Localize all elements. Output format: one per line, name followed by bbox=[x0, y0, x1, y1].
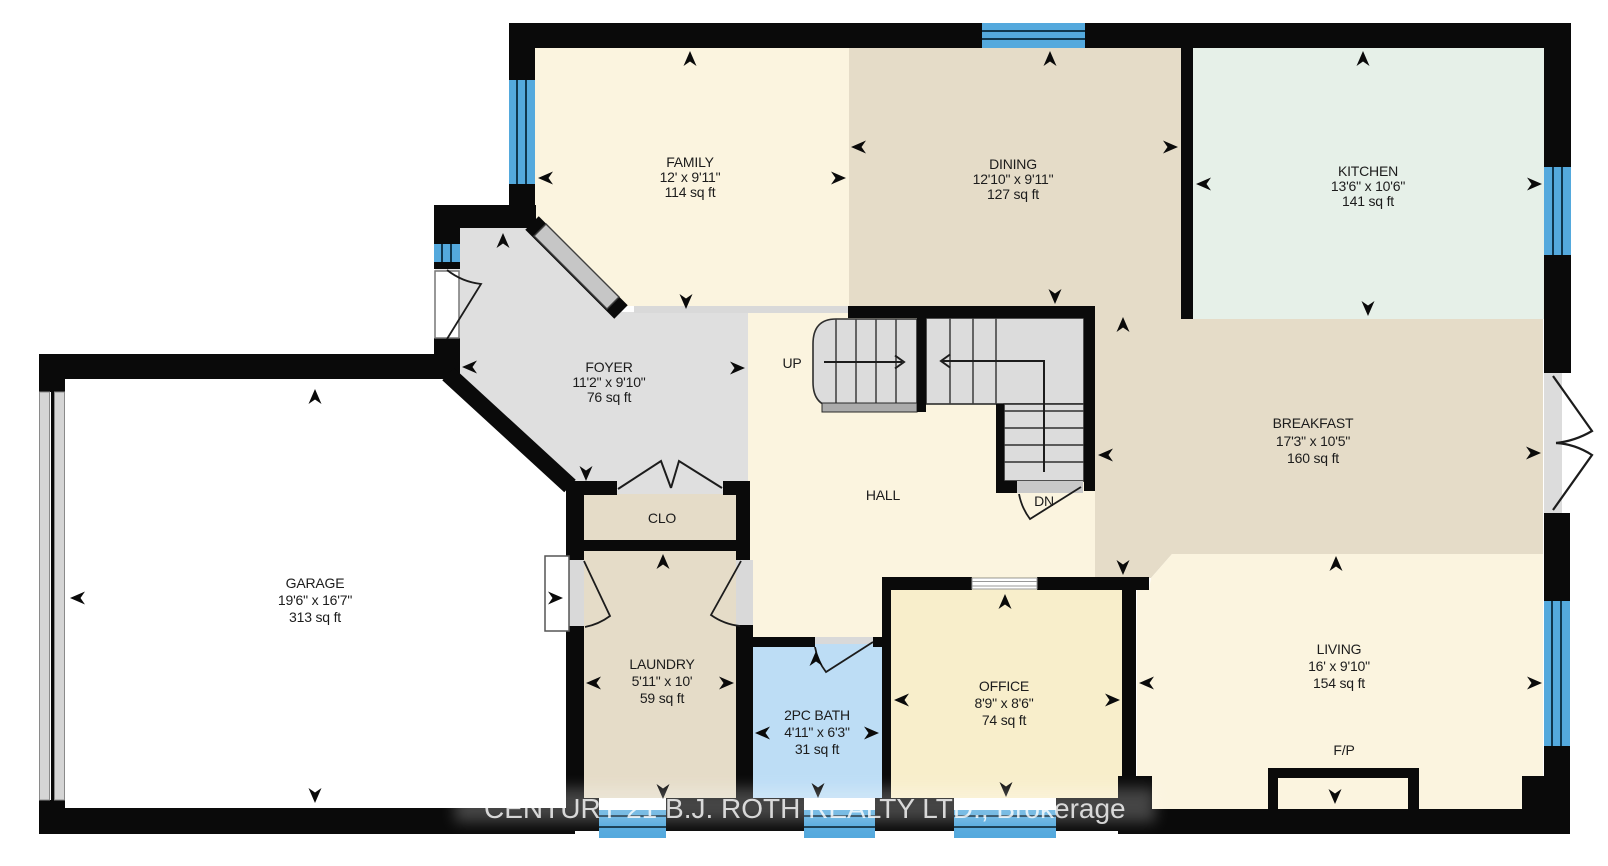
svg-text:DN: DN bbox=[1034, 493, 1054, 509]
svg-text:5'11" x 10': 5'11" x 10' bbox=[632, 673, 693, 689]
svg-text:12'10" x 9'11": 12'10" x 9'11" bbox=[973, 171, 1054, 187]
svg-text:FAMILY: FAMILY bbox=[666, 154, 714, 170]
svg-text:19'6" x 16'7": 19'6" x 16'7" bbox=[278, 592, 352, 608]
svg-text:4'11" x 6'3": 4'11" x 6'3" bbox=[784, 724, 850, 740]
svg-text:OFFICE: OFFICE bbox=[979, 678, 1029, 694]
svg-text:LAUNDRY: LAUNDRY bbox=[629, 656, 695, 672]
svg-text:LIVING: LIVING bbox=[1317, 641, 1362, 657]
svg-text:FOYER: FOYER bbox=[585, 359, 632, 375]
svg-text:74 sq ft: 74 sq ft bbox=[982, 712, 1027, 728]
svg-text:CENTURY 21 B.J. ROTH REALTY LT: CENTURY 21 B.J. ROTH REALTY LTD., Broker… bbox=[484, 793, 1126, 824]
svg-text:16' x 9'10": 16' x 9'10" bbox=[1308, 658, 1370, 674]
svg-text:F/P: F/P bbox=[1333, 742, 1354, 758]
svg-text:12' x 9'11": 12' x 9'11" bbox=[660, 169, 721, 185]
svg-text:114 sq ft: 114 sq ft bbox=[665, 184, 716, 200]
svg-text:11'2" x 9'10": 11'2" x 9'10" bbox=[572, 374, 645, 390]
svg-text:2PC BATH: 2PC BATH bbox=[784, 707, 850, 723]
svg-text:154 sq ft: 154 sq ft bbox=[1313, 675, 1365, 691]
svg-text:UP: UP bbox=[782, 355, 801, 371]
svg-text:59 sq ft: 59 sq ft bbox=[640, 690, 685, 706]
svg-text:31 sq ft: 31 sq ft bbox=[795, 741, 840, 757]
svg-text:76 sq ft: 76 sq ft bbox=[587, 389, 632, 405]
svg-text:160 sq ft: 160 sq ft bbox=[1287, 450, 1339, 466]
svg-text:KITCHEN: KITCHEN bbox=[1338, 163, 1398, 179]
svg-text:13'6" x 10'6": 13'6" x 10'6" bbox=[1331, 178, 1405, 194]
svg-text:DINING: DINING bbox=[989, 156, 1037, 172]
svg-text:GARAGE: GARAGE bbox=[286, 575, 345, 591]
svg-text:BREAKFAST: BREAKFAST bbox=[1273, 415, 1354, 431]
svg-text:CLO: CLO bbox=[648, 510, 676, 526]
svg-text:313 sq ft: 313 sq ft bbox=[289, 609, 341, 625]
svg-text:127 sq ft: 127 sq ft bbox=[987, 186, 1039, 202]
svg-text:17'3" x 10'5": 17'3" x 10'5" bbox=[1276, 433, 1350, 449]
svg-text:141 sq ft: 141 sq ft bbox=[1342, 193, 1394, 209]
svg-text:8'9" x 8'6": 8'9" x 8'6" bbox=[974, 695, 1033, 711]
svg-text:HALL: HALL bbox=[866, 487, 901, 503]
